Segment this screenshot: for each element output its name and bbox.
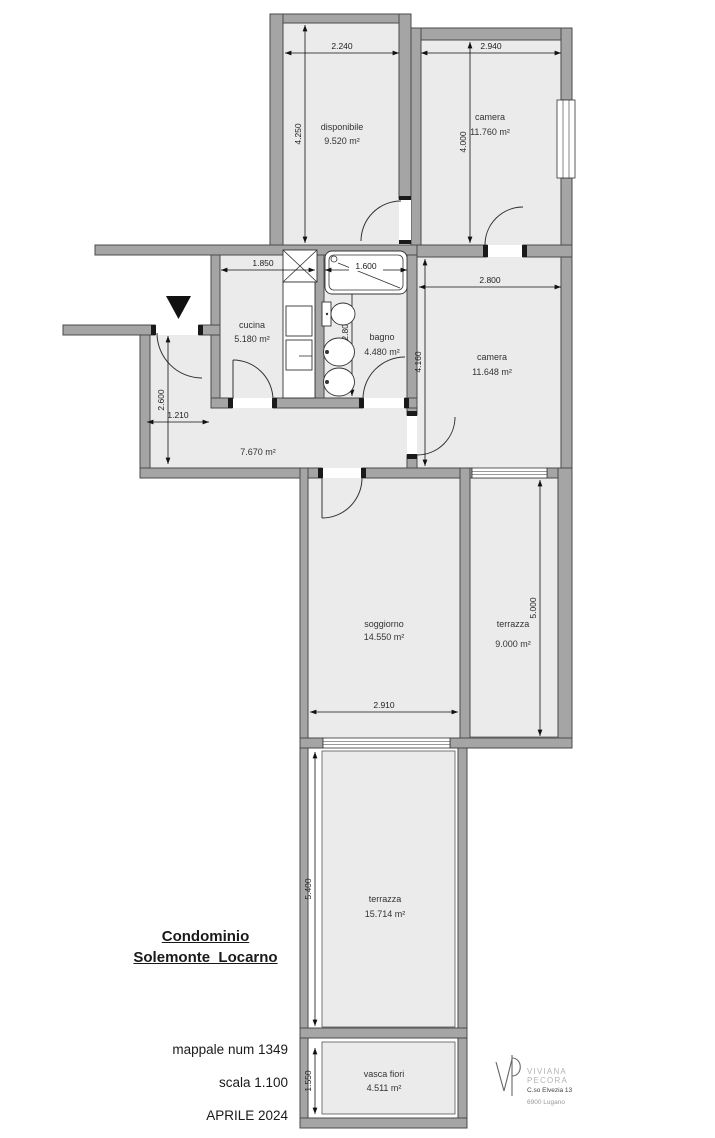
wall xyxy=(362,468,472,478)
floor-corridor xyxy=(211,408,407,468)
kitchen-appliance xyxy=(286,340,312,370)
project-title-line1: Condominio xyxy=(118,928,293,945)
room-area: 14.550 m² xyxy=(364,632,405,642)
logo-name-line1: VIVIANA xyxy=(527,1067,567,1076)
door-jamb xyxy=(407,454,417,459)
wall xyxy=(561,257,572,468)
wall xyxy=(300,1118,467,1128)
room-area: 4.511 m² xyxy=(367,1083,402,1093)
room-name: bagno xyxy=(369,332,394,342)
room-name: terrazza xyxy=(497,619,530,629)
wall xyxy=(63,325,155,335)
dim-label: 1.550 xyxy=(303,1070,313,1092)
entrance-arrow-icon xyxy=(166,296,191,319)
door-opening xyxy=(363,398,405,408)
wall xyxy=(270,14,411,23)
wall xyxy=(300,468,308,748)
drawing-scale: scala 1.100 xyxy=(95,1075,288,1090)
wall xyxy=(300,738,323,748)
logo-p-mark-icon xyxy=(512,1058,520,1076)
dim-label: 1.600 xyxy=(355,261,377,271)
floor-plan-drawing: 2.800 2.240 xyxy=(0,0,715,1138)
door-jamb xyxy=(361,468,366,478)
wall xyxy=(450,738,572,748)
window xyxy=(557,100,575,178)
bathtub xyxy=(325,251,407,294)
room-area: 9.000 m² xyxy=(495,639,531,649)
wall xyxy=(460,468,470,748)
drawing-date: APRILE 2024 xyxy=(95,1108,288,1123)
dim-label: 2.600 xyxy=(156,389,166,411)
dim-label: 2.910 xyxy=(373,700,395,710)
wall xyxy=(140,468,308,478)
wall xyxy=(411,28,421,257)
toilet-button xyxy=(326,313,328,315)
sink-faucet xyxy=(325,380,329,384)
dim-label: 4.160 xyxy=(413,351,423,373)
wall xyxy=(417,245,487,257)
wall xyxy=(407,255,417,398)
room-name: cucina xyxy=(239,320,265,330)
logo-address: C.so Elvezia 13 xyxy=(527,1087,573,1094)
wall xyxy=(411,28,572,40)
dim-label: 1.210 xyxy=(167,410,189,420)
door-opening xyxy=(232,398,273,408)
room-area: 5.180 m² xyxy=(234,334,270,344)
door-jamb xyxy=(318,468,323,478)
room-name: camera xyxy=(477,352,507,362)
room-area: 11.760 m² xyxy=(470,127,510,137)
dim-label: 1.850 xyxy=(252,258,274,268)
logo-v-mark-icon xyxy=(496,1062,504,1091)
room-name: camera xyxy=(475,112,505,122)
room-name: terrazza xyxy=(369,894,402,904)
sink-faucet xyxy=(325,350,329,354)
floor-plan-page: 2.800 2.240 xyxy=(0,0,715,1138)
logo-v-mark-icon xyxy=(504,1059,512,1091)
room-area: 15.714 m² xyxy=(365,909,406,919)
door-jamb xyxy=(483,245,488,257)
kitchen-appliance xyxy=(286,306,312,336)
logo-city: 6900 Lugano xyxy=(527,1099,565,1106)
wall xyxy=(270,14,283,255)
floor-terrazza-mid xyxy=(470,478,558,737)
wall xyxy=(558,468,572,748)
room-area: 7.670 m² xyxy=(240,447,276,457)
dim-label: 5.000 xyxy=(528,597,538,619)
wall xyxy=(300,1028,467,1038)
parcel-number: mappale num 1349 xyxy=(95,1042,288,1057)
wall xyxy=(458,1038,467,1128)
wall xyxy=(561,28,572,100)
door-jamb xyxy=(399,196,411,200)
floor-terrazza-bottom xyxy=(322,751,455,1027)
floor-camera-mid xyxy=(417,257,561,468)
door-jamb xyxy=(228,398,233,408)
door-jamb xyxy=(404,398,409,408)
dim-label: 4.000 xyxy=(458,131,468,153)
door-opening xyxy=(399,199,411,241)
window xyxy=(472,468,547,478)
room-area: 9.520 m² xyxy=(324,136,360,146)
toilet-bowl xyxy=(331,303,355,325)
door-jamb xyxy=(522,245,527,257)
room-area: 11.648 m² xyxy=(472,367,512,377)
dim-label: 2.240 xyxy=(331,41,353,51)
room-name: vasca fiori xyxy=(364,1069,405,1079)
window xyxy=(323,738,450,748)
room-area: 4.480 m² xyxy=(364,347,400,357)
wall xyxy=(523,245,572,257)
door-opening xyxy=(155,325,199,335)
door-opening xyxy=(322,468,362,478)
door-opening xyxy=(487,245,523,257)
dim-label: 2.940 xyxy=(480,41,502,51)
floor-camera-top xyxy=(421,40,561,245)
room-name: soggiorno xyxy=(364,619,404,629)
wall xyxy=(140,335,150,468)
room-name: disponibile xyxy=(321,122,364,132)
dim-label: 5.400 xyxy=(303,878,313,900)
wall xyxy=(399,14,411,199)
wall xyxy=(273,398,363,408)
door-jamb xyxy=(198,325,203,335)
logo-name-line2: PECORA xyxy=(527,1076,568,1085)
architect-logo: VIVIANA PECORA C.so Elvezia 13 6900 Luga… xyxy=(496,1055,573,1106)
door-jamb xyxy=(407,411,417,416)
wall xyxy=(458,748,467,1037)
door-jamb xyxy=(151,325,156,335)
door-jamb xyxy=(359,398,364,408)
project-title-line2: Solemonte_Locarno xyxy=(118,949,293,966)
door-jamb xyxy=(399,240,411,244)
dim-label: 2.800 xyxy=(479,275,501,285)
door-opening xyxy=(407,415,417,455)
dim-label: 4.250 xyxy=(293,123,303,145)
